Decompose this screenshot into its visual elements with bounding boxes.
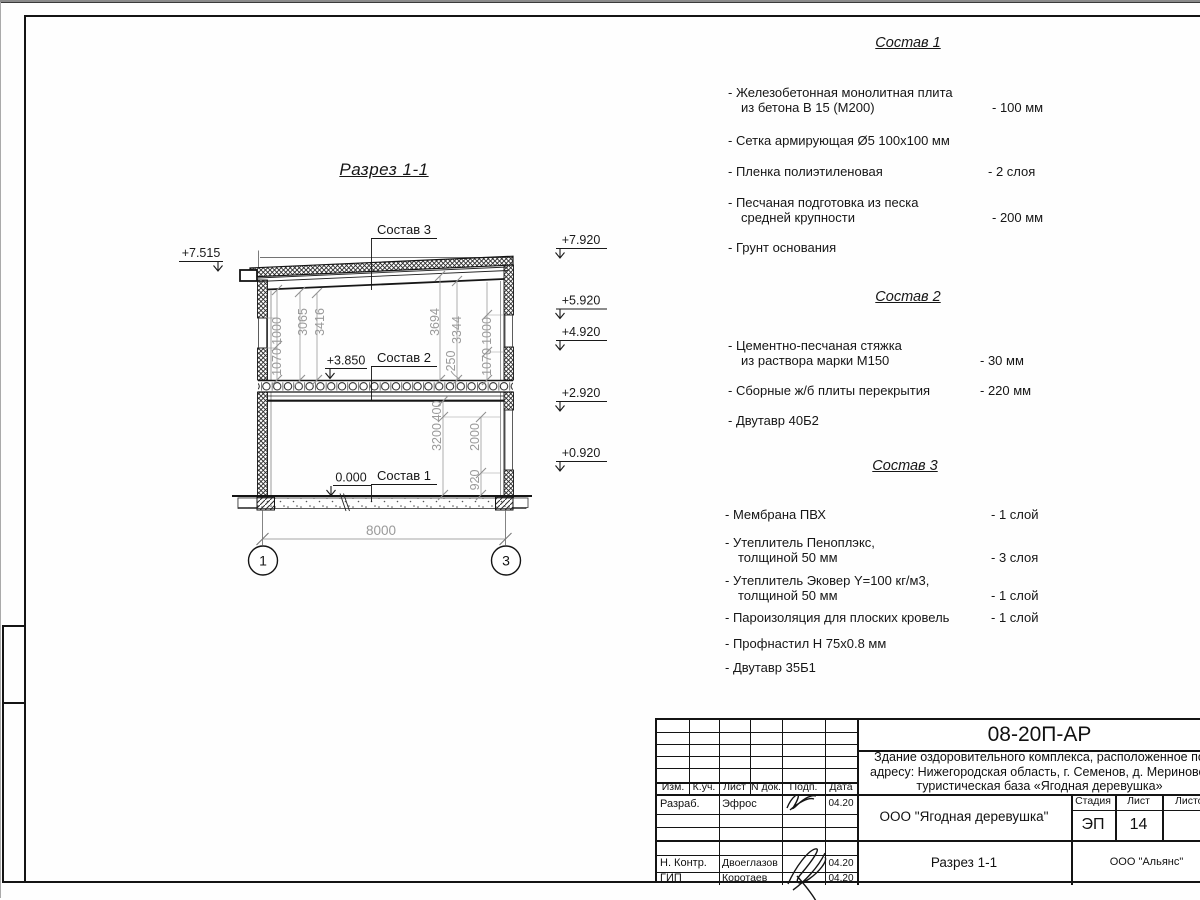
item-text: - Утеплитель Эковер Y=100 кг/м3, [725,573,1065,588]
col-kuch: К.уч. [689,782,719,794]
list-item: - Двутавр 35Б1 [725,660,1065,675]
elev-0000: 0.000 [335,471,366,485]
margin-divider-1 [2,625,24,627]
dim-400: 400 [430,401,444,422]
description-line-2: адресу: Нижегородская область, г. Семено… [857,765,1200,780]
col-ndok: N док. [750,782,782,794]
list-item: - Грунт основания [728,240,1068,255]
item-text: - Двутавр 35Б1 [725,660,1065,675]
row-name: Эфрос [722,794,782,814]
item-value: - 1 слой [991,507,1039,522]
dim-250: 250 [444,351,458,372]
frame-left [24,15,26,883]
col-izm: Изм. [657,782,689,794]
list-item: - Песчаная подготовка из песка средней к… [728,195,1068,225]
item-value: - 30 мм [980,353,1024,368]
section-title: Разрез 1-1 [304,160,464,180]
list-item: - Утеплитель Эковер Y=100 кг/м3, толщино… [725,573,1065,603]
axis-bubble-1 [249,546,278,575]
dim-1070-left: 1070 [270,348,284,376]
leader-comp2: Состав 2 [377,350,431,365]
comp1-title: Состав 1 [828,36,988,51]
sheet-name: Разрез 1-1 [857,840,1071,885]
page-edge-bottom [0,0,1200,2]
dim-920: 920 [468,470,482,491]
item-text: - Сетка армирующая Ø5 100х100 мм [728,133,1068,148]
item-text: - Грунт основания [728,240,1068,255]
item-text: - Песчаная подготовка из песка [728,195,1068,210]
stage-value: ЭП [1071,810,1115,840]
page-edge-left [0,0,1,898]
item-text: - Железобетонная монолитная плита [728,85,1068,100]
elev-7515: +7.515 [182,246,221,260]
row-date: 04.20 [825,794,857,814]
project-description: Здание оздоровительного комплекса, распо… [857,750,1200,794]
item-value: - 1 слой [991,588,1039,603]
item-value: - 3 слоя [991,550,1038,565]
interior-dim-texts: 1000 1070 3065 3416 3694 3344 250 1000 1… [270,308,494,490]
axis-dimension: 8000 1 3 [249,510,521,575]
dim-1000-left: 1000 [270,317,284,345]
comp2-title: Состав 2 [828,290,988,305]
dim-1070-right: 1070 [480,348,494,376]
right-wall [501,265,514,497]
ground-slab [232,494,532,512]
axis-label-3: 3 [502,553,510,569]
dim-3694: 3694 [428,308,442,336]
composition-leaders: Состав 3 Состав 2 Состав 1 [371,222,437,502]
list-item: - Пароизоляция для плоских кровель - 1 с… [725,610,1065,625]
col-data: Дата [825,782,857,794]
foundation-block [257,497,275,510]
floor-slab [258,381,513,401]
drawing-sheet: Разрез 1-1 Состав 1 - Железобетонная мон… [0,0,1200,900]
gutter-profile [240,270,257,281]
organization-name: ООО "Ягодная деревушка" [857,794,1071,840]
dim-1000-right: 1000 [480,317,494,345]
elev-4920: +4.920 [562,325,601,339]
row-name: Двоеглазов [722,855,784,872]
leader-comp3: Состав 3 [377,222,431,237]
list-item: - Цементно-песчаная стяжка из раствора м… [728,338,1068,368]
row-name: Коротаев [722,872,784,885]
foundation-block [496,497,514,510]
row-role: ГИП [660,872,719,885]
margin-divider-2 [2,702,24,704]
left-wall [258,280,272,497]
item-text: - Цементно-песчаная стяжка [728,338,1068,353]
contractor-name: ООО "Альянс" [1071,840,1200,885]
list-item: - Железобетонная монолитная плита из бет… [728,85,1068,115]
elev-3850: +3.850 [327,354,366,368]
elevation-marks: +7.515 +7.920 +5.920 +4.920 +2.920 +0.92… [179,233,607,496]
title-block: Изм. К.уч. Лист N док. Подп. Дата Разраб… [655,718,1200,883]
item-value: - 100 мм [992,100,1043,115]
dim-3416: 3416 [313,308,327,336]
row-date: 04.20 [825,855,857,872]
description-line-1: Здание оздоровительного комплекса, распо… [857,750,1200,765]
dim-3200: 3200 [430,423,444,451]
sheets-label: Листов [1162,794,1200,810]
row-role: Н. Контр. [660,855,719,872]
dim-3344: 3344 [450,316,464,344]
item-text: - Двутавр 40Б2 [728,413,1068,428]
list-item: - Пленка полиэтиленовая - 2 слоя [728,164,1068,179]
sheet-value: 14 [1115,810,1162,840]
interior-dimensions [267,276,504,495]
list-item: - Профнастил Н 75х0.8 мм [725,636,1065,651]
item-text: - Профнастил Н 75х0.8 мм [725,636,1065,651]
row-role: Разраб. [660,794,719,814]
list-item: - Двутавр 40Б2 [728,413,1068,428]
list-item: - Утеплитель Пеноплэкс, толщиной 50 мм -… [725,535,1065,565]
elev-0920: +0.920 [562,446,601,460]
dimension-ticks [272,271,492,500]
item-value: - 200 мм [992,210,1043,225]
margin-left-line [2,625,4,883]
item-value: - 1 слой [991,610,1039,625]
col-podp: Подп. [782,782,825,794]
dim-8000: 8000 [366,523,396,538]
item-text: - Утеплитель Пеноплэкс, [725,535,1065,550]
item-value: - 2 слоя [988,164,1035,179]
row-date: 04.20 [825,872,857,885]
list-item: - Сетка армирующая Ø5 100х100 мм [728,133,1068,148]
frame-top [24,15,1200,17]
roof [240,251,513,290]
item-value: - 220 мм [980,383,1031,398]
elev-2920: +2.920 [562,386,601,400]
list-item: - Мембрана ПВХ - 1 слой [725,507,1065,522]
document-code: 08-20П-АР [857,720,1200,750]
axis-bubble-3 [492,546,521,575]
break-mark [340,494,350,512]
elev-5920: +5.920 [562,294,601,308]
col-list: Лист [719,782,750,794]
dim-2000: 2000 [468,423,482,451]
stage-label: Стадия [1071,794,1115,810]
leader-comp1: Состав 1 [377,468,431,483]
axis-label-1: 1 [259,553,267,569]
dim-3065: 3065 [296,308,310,336]
sheet-label: Лист [1115,794,1162,810]
description-line-3: туристическая база «Ягодная деревушка» [857,779,1200,794]
comp3-title: Состав 3 [825,459,985,474]
elev-7920: +7.920 [562,233,601,247]
